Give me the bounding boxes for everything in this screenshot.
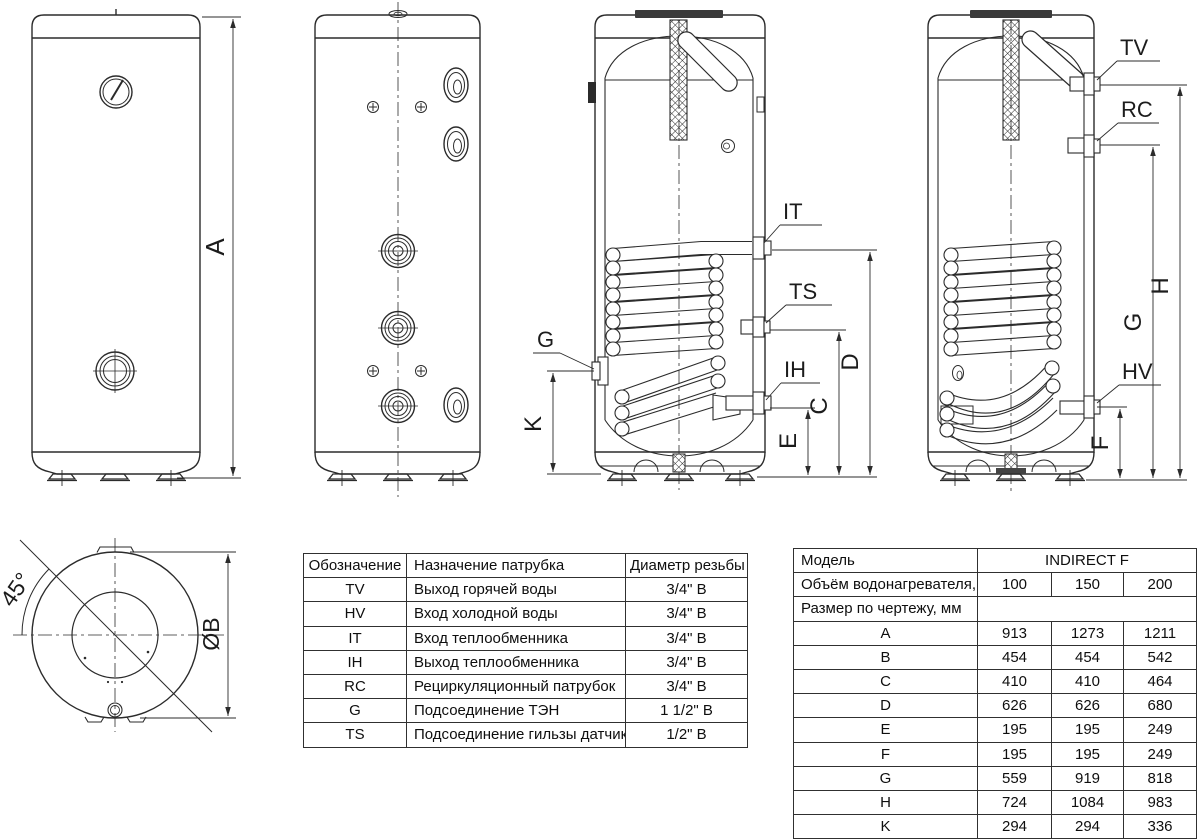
lower-coil bbox=[940, 361, 1060, 444]
dim-value: 195 bbox=[1052, 742, 1124, 766]
dim-name: D bbox=[794, 694, 978, 718]
dim-value: 410 bbox=[978, 669, 1052, 693]
label-tv: TV bbox=[1120, 35, 1148, 60]
dim-value: 559 bbox=[978, 766, 1052, 790]
table-row: TS Подсоединение гильзы датчика 1/2" В bbox=[304, 723, 748, 747]
dim-value: 410 bbox=[1052, 669, 1124, 693]
mount-screws bbox=[368, 102, 427, 377]
side-oval-port bbox=[444, 127, 468, 161]
dim-value: 680 bbox=[1124, 694, 1197, 718]
table-row: IT Вход теплообменника 3/4" В bbox=[304, 626, 748, 650]
port-thread: 3/4" В bbox=[626, 674, 748, 698]
dim-name: B bbox=[794, 645, 978, 669]
dim-label-f: F bbox=[1087, 436, 1114, 451]
port-code: TS bbox=[304, 723, 407, 747]
model-label: Модель bbox=[794, 549, 978, 573]
col-header-designation: Обозначение bbox=[304, 554, 407, 578]
section2-callouts: TV RC HV H G F bbox=[1086, 35, 1187, 480]
port-purpose: Выход горячей воды bbox=[407, 578, 626, 602]
ih-port-fitting bbox=[753, 392, 771, 414]
technical-drawing: A bbox=[0, 0, 1200, 540]
specs-model-row: Модель INDIRECT F bbox=[794, 549, 1197, 573]
table-row: G Подсоединение ТЭН 1 1/2" В bbox=[304, 699, 748, 723]
dim-row: H 724 1084 983 bbox=[794, 790, 1197, 814]
dim-label-d: D bbox=[837, 353, 864, 370]
dim-value: 195 bbox=[978, 718, 1052, 742]
dim-h: H bbox=[1100, 85, 1187, 478]
hv-port-fitting bbox=[1060, 396, 1100, 418]
table-row: IH Выход теплообменника 3/4" В bbox=[304, 650, 748, 674]
dim-value: 195 bbox=[1052, 718, 1124, 742]
port-thread: 1 1/2" В bbox=[626, 699, 748, 723]
ports-table-header-row: Обозначение Назначение патрубка Диаметр … bbox=[304, 554, 748, 578]
table-row: TV Выход горячей воды 3/4" В bbox=[304, 578, 748, 602]
label-g-port: G bbox=[537, 327, 554, 352]
tank-section-view-2 bbox=[928, 10, 1100, 494]
col-header-purpose: Назначение патрубка bbox=[407, 554, 626, 578]
port-thread: 3/4" В bbox=[626, 578, 748, 602]
port-thread: 1/2" В bbox=[626, 723, 748, 747]
tank-front-view bbox=[32, 9, 200, 486]
diameter-label: ØB bbox=[198, 617, 224, 650]
dim-value: 724 bbox=[978, 790, 1052, 814]
port-code: HV bbox=[304, 602, 407, 626]
model-value: INDIRECT F bbox=[978, 549, 1197, 573]
size-label: Размер по чертежу, мм bbox=[794, 597, 978, 621]
port-purpose: Рециркуляционный патрубок bbox=[407, 674, 626, 698]
label-ts: TS bbox=[789, 279, 817, 304]
dim-label-h: H bbox=[1147, 277, 1174, 294]
dim-name: A bbox=[794, 621, 978, 645]
side-oval-port bbox=[444, 388, 468, 422]
dim-label-a: A bbox=[200, 238, 230, 256]
dim-value: 454 bbox=[1052, 645, 1124, 669]
dim-label-c: C bbox=[806, 397, 833, 414]
label-it: IT bbox=[783, 199, 803, 224]
tv-port-fitting bbox=[1084, 73, 1100, 95]
dim-value: 818 bbox=[1124, 766, 1197, 790]
thermometer-gauge bbox=[100, 76, 132, 108]
volume-value: 200 bbox=[1124, 573, 1197, 597]
dim-value: 195 bbox=[978, 742, 1052, 766]
section1-callouts: IT TS IH G K E C D bbox=[520, 199, 877, 477]
dim-name: E bbox=[794, 718, 978, 742]
dim-row: B 454 454 542 bbox=[794, 645, 1197, 669]
dim-value: 454 bbox=[978, 645, 1052, 669]
port-code: RC bbox=[304, 674, 407, 698]
dim-value: 336 bbox=[1124, 815, 1197, 839]
port-code: TV bbox=[304, 578, 407, 602]
dim-value: 626 bbox=[978, 694, 1052, 718]
dim-k: K bbox=[520, 371, 601, 474]
dim-name: H bbox=[794, 790, 978, 814]
dim-value: 919 bbox=[1052, 766, 1124, 790]
specs-size-header-row: Размер по чертежу, мм bbox=[794, 597, 1197, 621]
dim-label-e: E bbox=[775, 433, 802, 449]
dim-label-g: G bbox=[1120, 313, 1147, 332]
dim-g: G bbox=[1100, 145, 1160, 478]
rc-port-fitting bbox=[1068, 135, 1100, 157]
dim-row: G 559 919 818 bbox=[794, 766, 1197, 790]
tank-top-view: 45° ØB bbox=[0, 530, 290, 840]
port-purpose: Подсоединение ТЭН bbox=[407, 699, 626, 723]
dim-name: G bbox=[794, 766, 978, 790]
dim-value: 294 bbox=[978, 815, 1052, 839]
table-row: RC Рециркуляционный патрубок 3/4" В bbox=[304, 674, 748, 698]
dim-label-k: K bbox=[520, 416, 547, 432]
port-thread: 3/4" В bbox=[626, 602, 748, 626]
label-plate bbox=[588, 82, 596, 103]
top-cover-plate bbox=[635, 10, 723, 18]
port-purpose: Подсоединение гильзы датчика bbox=[407, 723, 626, 747]
dim-name: F bbox=[794, 742, 978, 766]
angle-label: 45° bbox=[0, 568, 36, 611]
dim-value: 1211 bbox=[1124, 621, 1197, 645]
port-code: IT bbox=[304, 626, 407, 650]
dim-name: K bbox=[794, 815, 978, 839]
label-ih: IH bbox=[784, 357, 806, 382]
size-empty-cell bbox=[978, 597, 1197, 621]
tank-rear-view bbox=[315, 2, 480, 497]
dim-value: 1273 bbox=[1052, 621, 1124, 645]
port-code: IH bbox=[304, 650, 407, 674]
dim-e: E bbox=[770, 408, 815, 475]
upper-coil bbox=[944, 241, 1061, 356]
dim-value: 913 bbox=[978, 621, 1052, 645]
dim-value: 1084 bbox=[1052, 790, 1124, 814]
port-purpose: Вход холодной воды bbox=[407, 602, 626, 626]
top-cover-plate bbox=[970, 10, 1052, 18]
specs-volume-row: Объём водонагревателя, л 100 150 200 bbox=[794, 573, 1197, 597]
dim-row: K 294 294 336 bbox=[794, 815, 1197, 839]
dim-row: E 195 195 249 bbox=[794, 718, 1197, 742]
port-code: G bbox=[304, 699, 407, 723]
dim-row: D 626 626 680 bbox=[794, 694, 1197, 718]
port-purpose: Вход теплообменника bbox=[407, 626, 626, 650]
side-oval-port bbox=[444, 68, 468, 102]
dim-name: C bbox=[794, 669, 978, 693]
dim-a: A bbox=[177, 17, 241, 478]
dim-row: A 913 1273 1211 bbox=[794, 621, 1197, 645]
center-threaded-port bbox=[378, 390, 418, 423]
tank-section-view-1 bbox=[588, 10, 771, 490]
dim-value: 626 bbox=[1052, 694, 1124, 718]
port-purpose: Выход теплообменника bbox=[407, 650, 626, 674]
label-hv: HV bbox=[1122, 359, 1153, 384]
dim-row: F 195 195 249 bbox=[794, 742, 1197, 766]
dim-value: 983 bbox=[1124, 790, 1197, 814]
label-rc: RC bbox=[1121, 97, 1153, 122]
dim-row: C 410 410 464 bbox=[794, 669, 1197, 693]
it-port-fitting bbox=[753, 237, 771, 259]
specs-table: Модель INDIRECT F Объём водонагревателя,… bbox=[793, 548, 1197, 839]
volume-value: 150 bbox=[1052, 573, 1124, 597]
ports-table: Обозначение Назначение патрубка Диаметр … bbox=[303, 553, 748, 748]
dim-value: 294 bbox=[1052, 815, 1124, 839]
col-header-thread: Диаметр резьбы bbox=[626, 554, 748, 578]
port-thread: 3/4" В bbox=[626, 626, 748, 650]
heater-flange-port bbox=[93, 349, 137, 393]
dim-value: 542 bbox=[1124, 645, 1197, 669]
volume-value: 100 bbox=[978, 573, 1052, 597]
volume-label: Объём водонагревателя, л bbox=[794, 573, 978, 597]
dim-value: 249 bbox=[1124, 718, 1197, 742]
port-thread: 3/4" В bbox=[626, 650, 748, 674]
dim-value: 249 bbox=[1124, 742, 1197, 766]
table-row: HV Вход холодной воды 3/4" В bbox=[304, 602, 748, 626]
dim-value: 464 bbox=[1124, 669, 1197, 693]
lower-coil bbox=[615, 356, 755, 436]
